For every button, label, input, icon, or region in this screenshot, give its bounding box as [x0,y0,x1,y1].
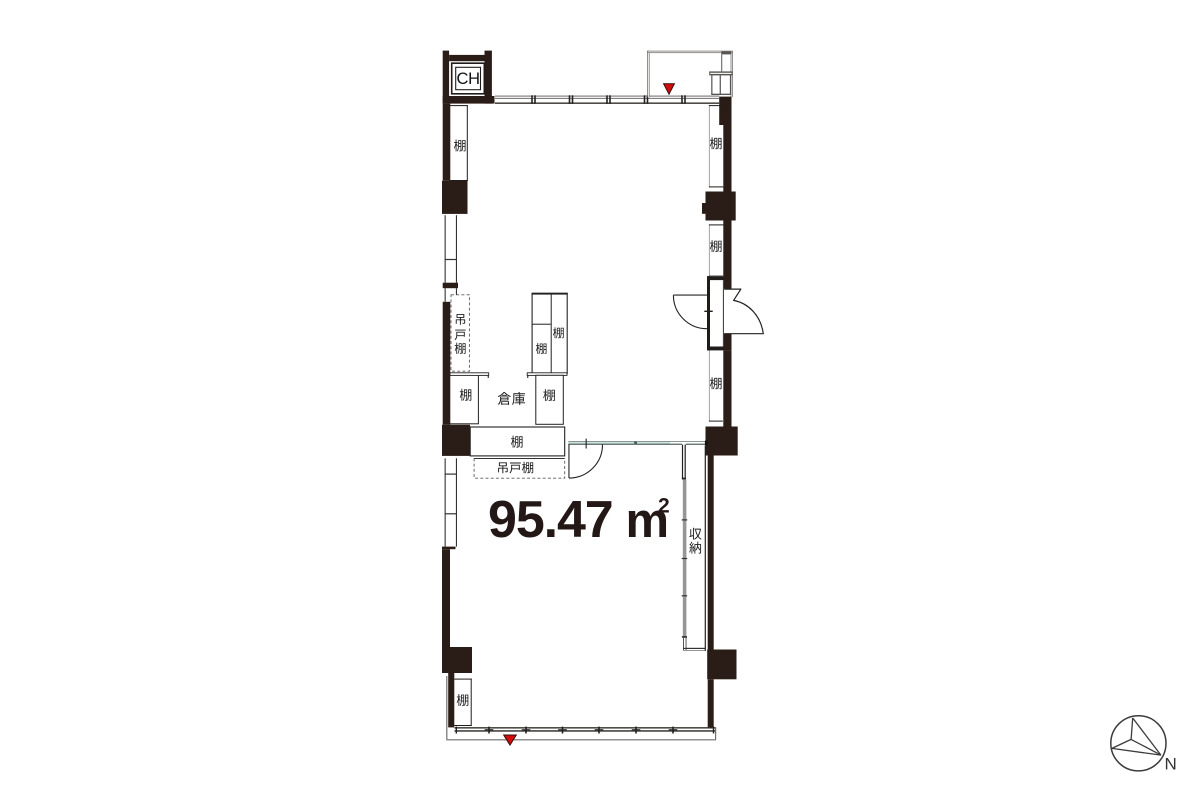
svg-text:N: N [1165,755,1177,774]
svg-text:2: 2 [658,494,670,517]
svg-text:CH: CH [456,70,479,88]
svg-text:95.47: 95.47 [488,491,613,549]
